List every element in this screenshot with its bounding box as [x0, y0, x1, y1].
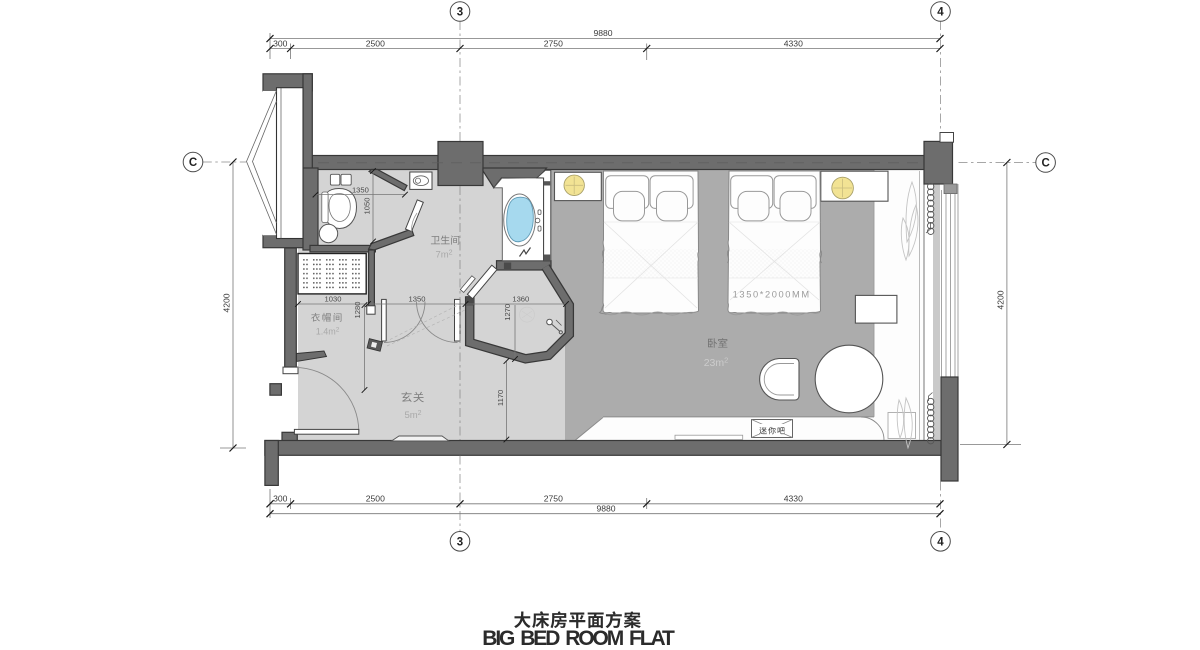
svg-text:C: C [189, 157, 197, 169]
svg-text:4200: 4200 [222, 293, 232, 312]
svg-text:2750: 2750 [544, 38, 563, 48]
svg-text:300: 300 [273, 38, 288, 48]
svg-text:3: 3 [457, 7, 463, 19]
svg-text:1280: 1280 [353, 302, 362, 319]
svg-text:1270: 1270 [503, 304, 512, 321]
svg-text:4200: 4200 [995, 290, 1005, 309]
svg-text:1170: 1170 [496, 390, 505, 406]
svg-text:9880: 9880 [593, 28, 612, 38]
svg-text:4330: 4330 [784, 38, 803, 48]
svg-text:C: C [1041, 158, 1049, 170]
svg-text:3: 3 [457, 536, 463, 548]
svg-text:4: 4 [937, 536, 944, 548]
svg-text:1360: 1360 [512, 295, 529, 304]
svg-text:1030: 1030 [325, 295, 342, 304]
svg-text:2500: 2500 [366, 494, 385, 504]
svg-text:2500: 2500 [366, 38, 385, 48]
svg-text:1350*2000MM: 1350*2000MM [733, 290, 811, 300]
svg-text:9880: 9880 [596, 504, 615, 514]
svg-text:4: 4 [937, 7, 944, 19]
svg-text:BIG BED ROOM FLAT: BIG BED ROOM FLAT [482, 627, 675, 650]
svg-text:300: 300 [273, 494, 288, 504]
svg-text:1350: 1350 [352, 186, 369, 195]
svg-text:1350: 1350 [409, 295, 426, 304]
svg-text:4330: 4330 [784, 494, 803, 504]
svg-text:2750: 2750 [544, 494, 563, 504]
svg-text:1050: 1050 [363, 198, 372, 215]
